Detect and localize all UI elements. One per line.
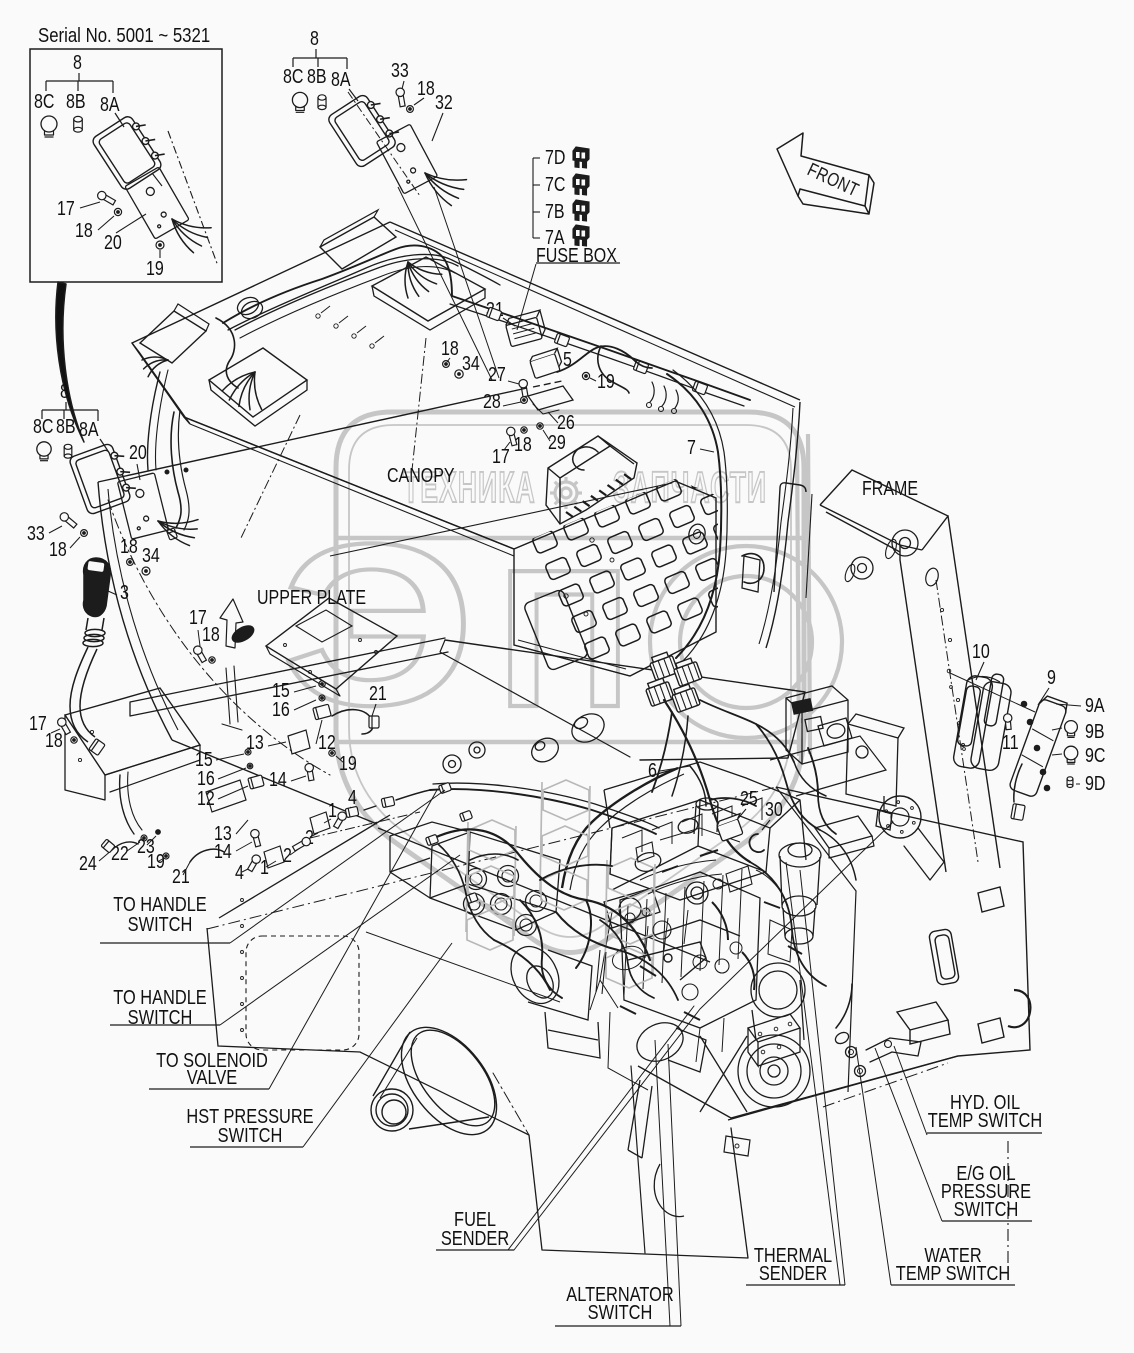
svg-text:1: 1 xyxy=(328,799,337,821)
svg-text:SWITCH: SWITCH xyxy=(954,1197,1019,1220)
svg-text:TEMP SWITCH: TEMP SWITCH xyxy=(896,1261,1010,1284)
svg-text:8C: 8C xyxy=(283,65,303,87)
svg-text:18: 18 xyxy=(417,77,435,99)
svg-text:4: 4 xyxy=(235,861,244,883)
svg-text:9A: 9A xyxy=(1085,694,1105,716)
svg-text:12: 12 xyxy=(197,787,215,809)
svg-text:19: 19 xyxy=(147,850,165,872)
svg-text:SWITCH: SWITCH xyxy=(128,912,193,935)
svg-text:2: 2 xyxy=(283,844,292,866)
svg-text:26: 26 xyxy=(557,411,575,433)
svg-text:9C: 9C xyxy=(1085,744,1105,766)
svg-text:8B: 8B xyxy=(56,415,76,437)
svg-text:UPPER PLATE: UPPER PLATE xyxy=(257,586,366,608)
svg-text:19: 19 xyxy=(339,752,357,774)
svg-text:8A: 8A xyxy=(100,93,120,115)
svg-text:8B: 8B xyxy=(66,90,86,112)
svg-text:CANOPY: CANOPY xyxy=(387,464,455,486)
svg-text:3: 3 xyxy=(120,581,129,603)
svg-text:8C: 8C xyxy=(34,90,54,112)
svg-text:8: 8 xyxy=(310,27,319,49)
svg-text:9B: 9B xyxy=(1085,720,1105,742)
svg-text:19: 19 xyxy=(146,257,164,279)
svg-text:17: 17 xyxy=(57,197,75,219)
svg-text:30: 30 xyxy=(765,798,783,820)
svg-text:16: 16 xyxy=(197,767,215,789)
svg-text:18: 18 xyxy=(45,729,63,751)
svg-text:VALVE: VALVE xyxy=(187,1065,237,1088)
svg-text:П: П xyxy=(498,530,630,748)
svg-text:7D: 7D xyxy=(545,146,565,168)
svg-text:34: 34 xyxy=(462,352,480,374)
svg-text:27: 27 xyxy=(488,363,506,385)
svg-text:33: 33 xyxy=(27,522,45,544)
svg-text:20: 20 xyxy=(129,441,147,463)
svg-text:29: 29 xyxy=(548,431,566,453)
svg-text:SWITCH: SWITCH xyxy=(218,1123,283,1146)
svg-text:16: 16 xyxy=(272,698,290,720)
svg-text:7B: 7B xyxy=(545,200,565,222)
svg-text:18: 18 xyxy=(49,538,67,560)
svg-text:18: 18 xyxy=(120,535,138,557)
svg-text:18: 18 xyxy=(441,337,459,359)
svg-text:Serial No. 5001 ~ 5321: Serial No. 5001 ~ 5321 xyxy=(38,24,210,47)
svg-text:10: 10 xyxy=(972,640,990,662)
svg-text:SWITCH: SWITCH xyxy=(588,1300,653,1323)
svg-text:18: 18 xyxy=(514,433,532,455)
svg-text:18: 18 xyxy=(202,623,220,645)
svg-text:8B: 8B xyxy=(307,65,327,87)
svg-text:20: 20 xyxy=(104,231,122,253)
svg-text:18: 18 xyxy=(75,219,93,241)
svg-text:24: 24 xyxy=(79,852,97,874)
svg-text:SENDER: SENDER xyxy=(441,1226,509,1249)
svg-text:34: 34 xyxy=(142,544,160,566)
svg-text:11: 11 xyxy=(1002,731,1019,753)
svg-text:25: 25 xyxy=(740,787,758,809)
svg-text:8: 8 xyxy=(73,51,82,73)
svg-text:9D: 9D xyxy=(1085,772,1105,794)
svg-text:21: 21 xyxy=(369,682,387,704)
svg-text:8A: 8A xyxy=(331,68,351,90)
svg-text:7: 7 xyxy=(687,436,696,458)
svg-text:17: 17 xyxy=(29,712,47,734)
svg-text:14: 14 xyxy=(269,768,287,790)
svg-text:SENDER: SENDER xyxy=(759,1261,827,1284)
svg-text:9: 9 xyxy=(1047,666,1056,688)
svg-text:21: 21 xyxy=(172,865,190,887)
svg-text:8C: 8C xyxy=(33,415,53,437)
svg-text:8: 8 xyxy=(60,380,69,402)
svg-text:13: 13 xyxy=(246,731,264,753)
svg-text:32: 32 xyxy=(435,91,453,113)
svg-text:7C: 7C xyxy=(545,173,565,195)
svg-text:8A: 8A xyxy=(79,418,99,440)
svg-text:4: 4 xyxy=(348,786,357,808)
svg-text:33: 33 xyxy=(391,59,409,81)
svg-text:TEMP SWITCH: TEMP SWITCH xyxy=(928,1108,1042,1131)
svg-text:17: 17 xyxy=(492,445,510,467)
